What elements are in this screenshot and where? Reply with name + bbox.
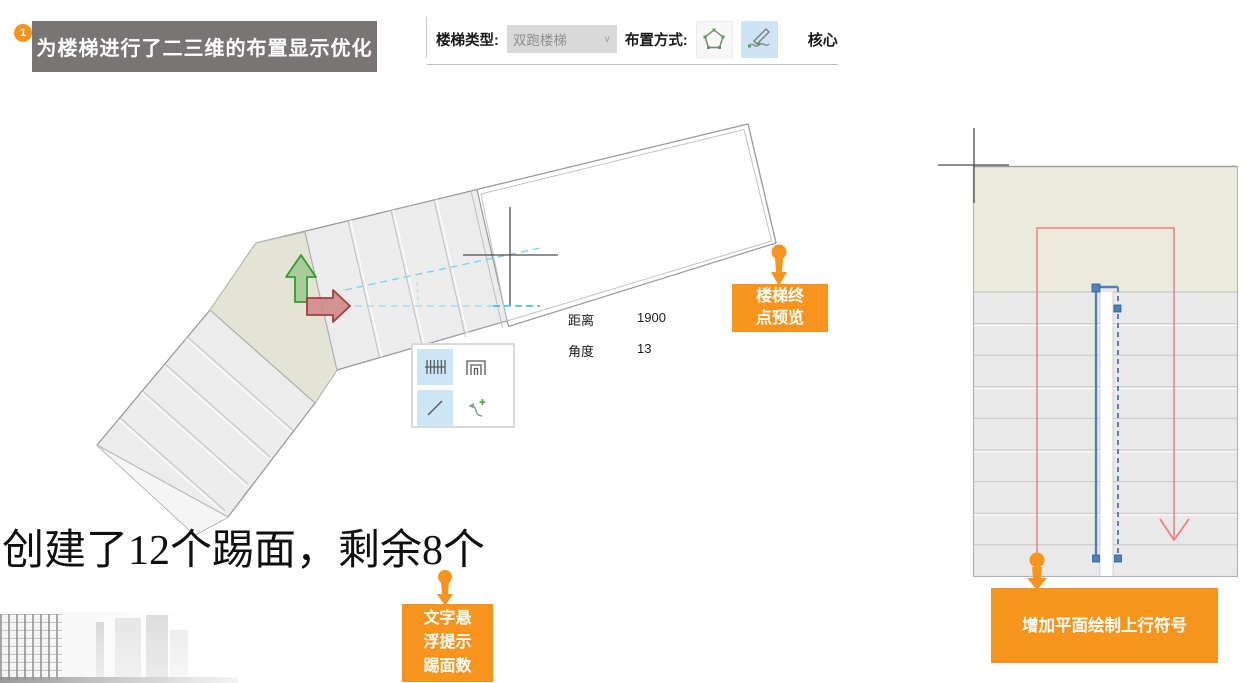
distance-label: 距离	[568, 310, 637, 329]
gizmo-arrow-right[interactable]	[307, 290, 350, 322]
stair-segment-toolbar	[411, 343, 515, 428]
callout-stair-endpoint-preview: 楼梯终 点预览	[732, 284, 828, 332]
toolbar-underline	[427, 64, 838, 65]
chevron-down-icon: ∨	[604, 34, 611, 45]
step-badge: 1	[14, 24, 32, 42]
spline-add-icon	[464, 396, 488, 420]
right-stair-treads	[974, 292, 1237, 545]
callout-up-direction-symbol: 增加平面绘制上行符号	[991, 588, 1218, 663]
right-stair-plan	[938, 128, 1238, 577]
upper-run-tread-highlights	[350, 199, 468, 357]
stair-run-button[interactable]	[417, 349, 453, 385]
railing-selected[interactable]	[1092, 284, 1122, 562]
stair-outline	[97, 124, 776, 535]
riser-count-tooltip: 创建了12个踢面，剩余8个	[2, 516, 485, 577]
angle-label: 角度	[568, 341, 637, 360]
feature-banner-text: 为楼梯进行了二三维的布置显示优化	[37, 32, 373, 61]
up-direction-path	[1037, 228, 1189, 556]
main-stair-plan	[97, 124, 776, 535]
line-segment-icon	[423, 396, 447, 420]
right-stair-body	[974, 167, 1238, 577]
snap-guides	[345, 248, 540, 306]
placement-method-label: 布置方式:	[625, 29, 688, 50]
right-stair-tread-highlights	[974, 325, 1237, 515]
sketch-draw-button[interactable]	[741, 21, 778, 58]
stair-type-dropdown[interactable]: 双跑楼梯 ∨	[507, 25, 617, 53]
crosshair-cursor	[463, 207, 558, 305]
pentagon-draw-button[interactable]	[696, 21, 733, 58]
stair-run-icon	[423, 355, 447, 379]
feature-banner: 为楼梯进行了二三维的布置显示优化	[32, 21, 377, 72]
gizmo-arrow-up[interactable]	[286, 255, 316, 302]
landing-icon	[464, 355, 488, 379]
up-symbol-marker	[1027, 553, 1047, 591]
stair-gap	[1100, 292, 1113, 576]
stair-landing	[210, 232, 337, 403]
right-stair-landing	[974, 167, 1237, 292]
building-photo-strip	[0, 612, 238, 683]
endpoint-marker	[771, 245, 787, 287]
lower-run-treads	[97, 310, 315, 517]
callout-hover-tip-riser-count: 文字悬 浮提示 踢面数	[402, 604, 493, 682]
stair-remaining-inner-line	[481, 130, 772, 322]
sketch-draw-icon	[745, 25, 773, 53]
core-label: 核心	[808, 29, 838, 50]
spline-add-button[interactable]	[458, 390, 494, 426]
angle-value: 13	[637, 341, 666, 360]
distance-angle-readout: 距离 1900 角度 13	[568, 310, 666, 360]
landing-button[interactable]	[458, 349, 494, 385]
distance-value: 1900	[637, 310, 666, 329]
right-crosshair-cursor	[938, 128, 1009, 203]
line-segment-button[interactable]	[417, 390, 453, 426]
stair-type-label: 楼梯类型:	[436, 29, 499, 50]
stair-toolbar: 楼梯类型: 双跑楼梯 ∨ 布置方式: 核心	[420, 14, 890, 64]
stair-type-value: 双跑楼梯	[513, 29, 567, 49]
lower-run-tread-highlights	[119, 339, 291, 513]
pentagon-draw-icon	[701, 26, 727, 52]
railing-grips[interactable]	[1092, 284, 1122, 562]
